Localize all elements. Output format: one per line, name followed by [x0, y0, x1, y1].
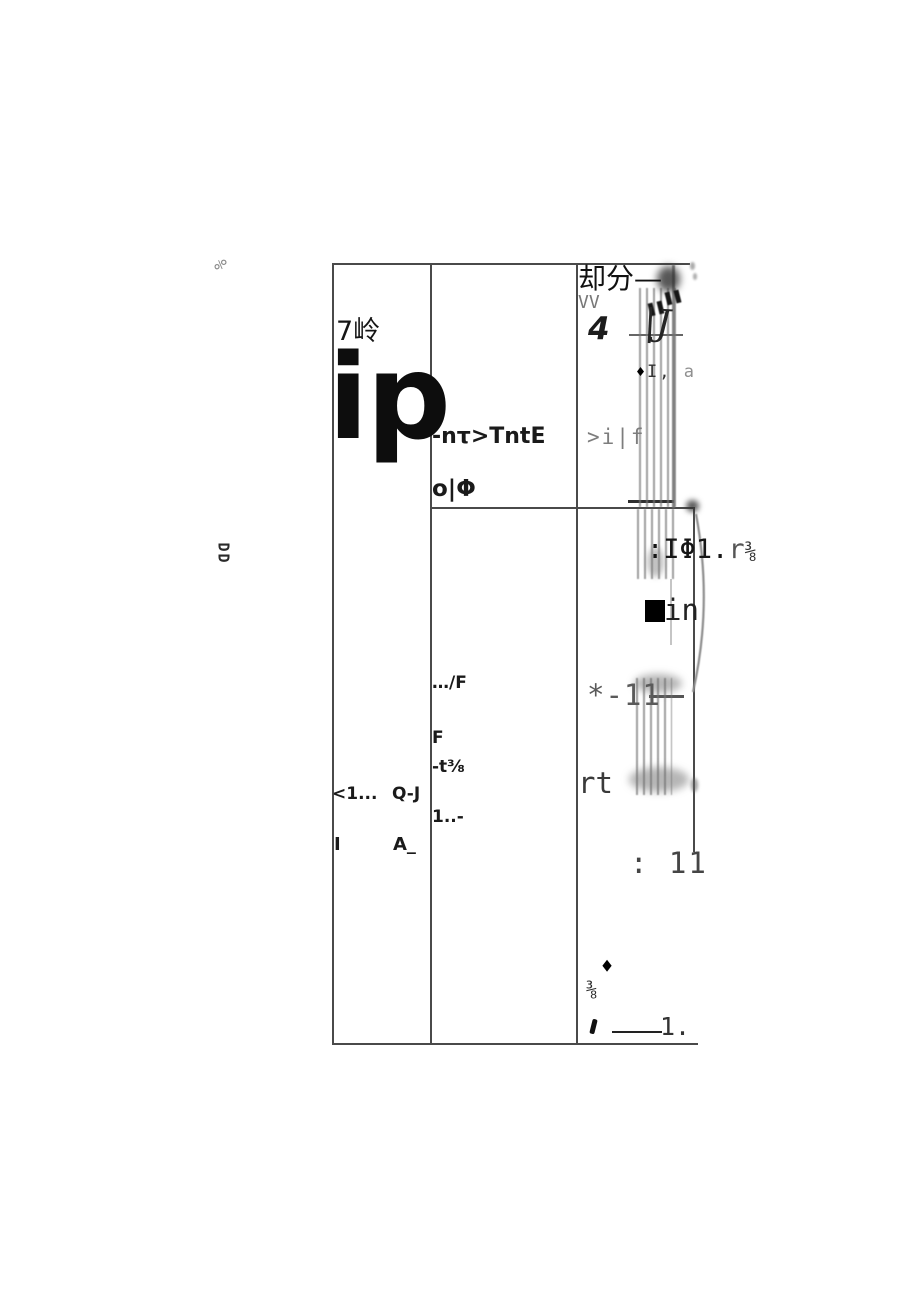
col3-phi-line: :IΦ1.r⅜: [582, 509, 757, 590]
col3-note-dark: I,: [647, 362, 671, 382]
col1-row2-right: A_: [393, 836, 416, 854]
diamond2-icon: ♦: [601, 956, 613, 976]
table-border-bottom: [332, 1043, 698, 1045]
col3-rt-fragment: rt: [578, 769, 613, 798]
col2-line5: -t⅜: [432, 759, 465, 776]
scan-band-lower: [629, 767, 689, 792]
col2-line3: …/F: [432, 675, 467, 692]
scan-dot-right: [691, 778, 698, 792]
column-divider-2: [576, 263, 578, 1045]
comma-mark: [589, 1019, 597, 1035]
phi-line-r: r: [728, 534, 744, 565]
scan-speck-2: [693, 273, 697, 280]
col3-number-label: 1.: [660, 1014, 690, 1039]
margin-mark-top: %: [211, 259, 228, 269]
col3-fragment-gray: >i|f: [587, 427, 646, 448]
underscore-line: [612, 1031, 662, 1033]
margin-mark-bottom: DD: [216, 542, 231, 564]
col2-line2: o|Φ: [432, 478, 476, 501]
col3-fraction-mark: ⅜: [586, 981, 597, 1000]
col3-diamond-note: ♦I, a: [587, 347, 696, 398]
col3-title: 却分—: [578, 265, 662, 293]
col3-numeral: 4: [588, 314, 610, 345]
square-icon: [645, 600, 665, 622]
diamond-icon: ♦: [636, 363, 647, 381]
col3-star-fragment: *-11: [587, 681, 661, 710]
scan-speck-1: [690, 262, 695, 270]
col2-line1: -nτ>TntE: [432, 426, 545, 448]
col3-subtitle: VV: [578, 294, 600, 312]
col1-big-label: ip: [328, 338, 449, 456]
phi-line-fraction: ⅜: [745, 539, 757, 563]
col3-colon-eleven: : 11: [630, 849, 708, 878]
col3-note-light: a: [684, 362, 696, 382]
col2-line6: 1..-: [432, 809, 464, 826]
col1-row2-left: I: [334, 836, 341, 854]
col3-in-label: in: [664, 596, 699, 625]
phi-line-main: :IΦ1.: [647, 534, 728, 565]
col2-line4: F: [432, 730, 444, 747]
scanned-document-page: % DD 7岭 ip <1... Q-J I A_ -nτ>TntE o|Φ ……: [0, 0, 920, 1301]
handwritten-mark: |J: [643, 305, 671, 342]
col1-row1-right: Q-J: [392, 786, 420, 803]
col1-row1-left: <1...: [332, 786, 377, 803]
